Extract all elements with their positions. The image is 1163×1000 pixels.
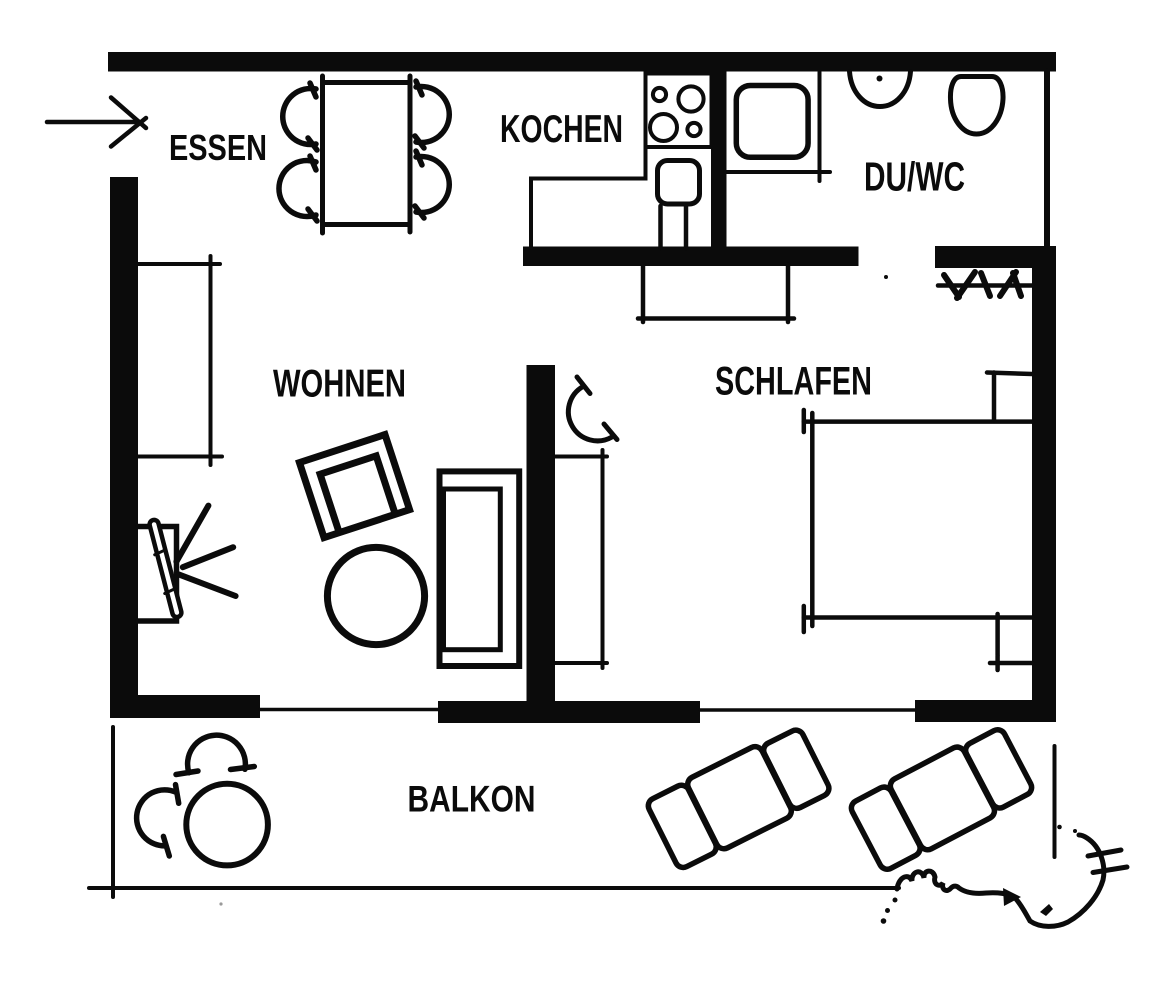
svg-text:ESSEN: ESSEN [169,127,267,168]
svg-text:BALKON: BALKON [408,779,536,820]
svg-text:KOCHEN: KOCHEN [500,108,623,151]
svg-text:DU/WC: DU/WC [864,154,965,200]
svg-text:WOHNEN: WOHNEN [273,363,406,406]
svg-text:SCHLAFEN: SCHLAFEN [715,360,872,404]
